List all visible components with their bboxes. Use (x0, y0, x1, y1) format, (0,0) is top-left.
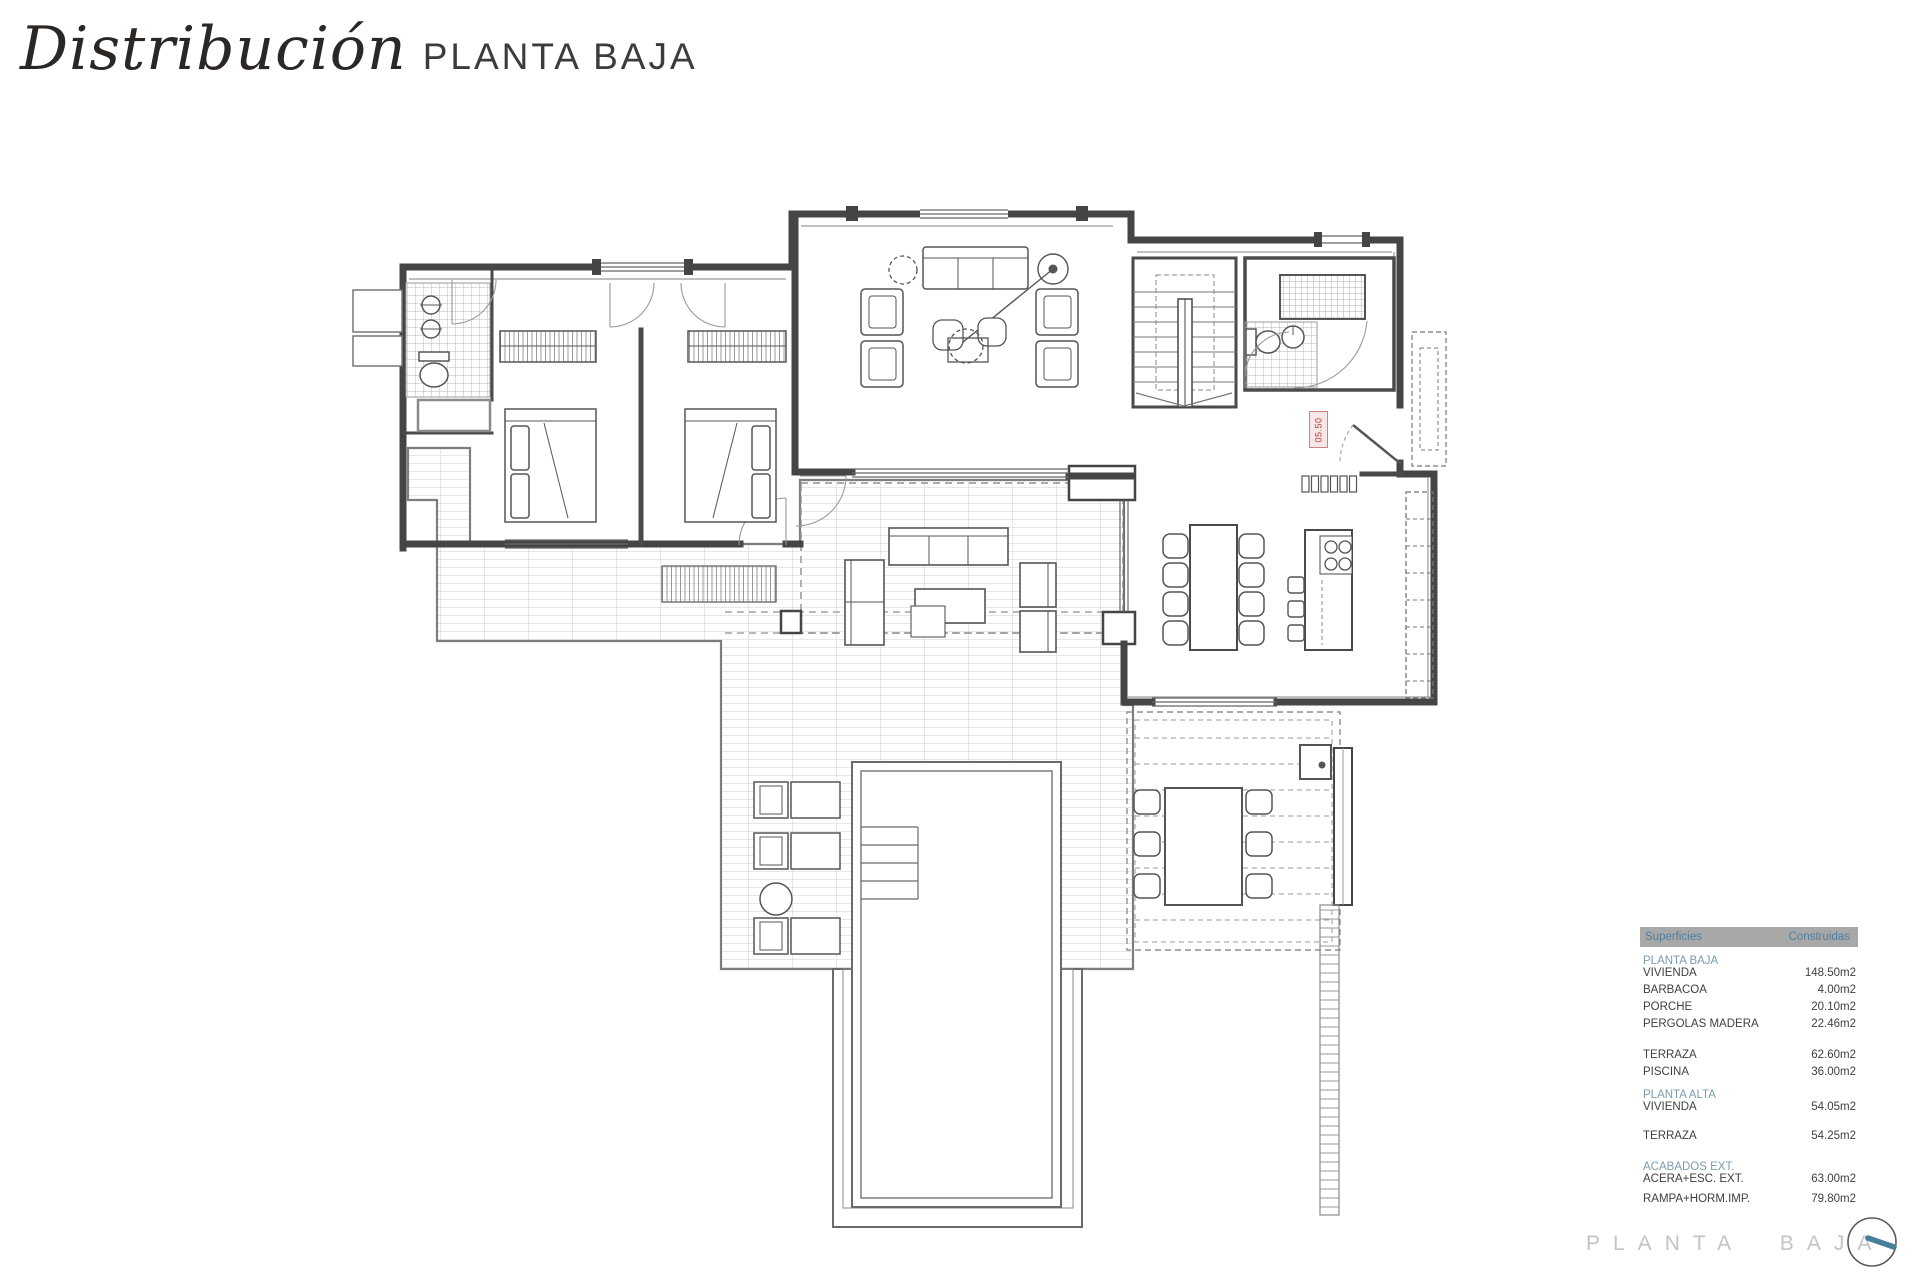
window-entry-north (1314, 232, 1370, 247)
table-row: TERRAZA54.25m2 (1640, 1130, 1858, 1147)
outdoor-dining-table (1165, 788, 1242, 905)
pool (833, 762, 1082, 1227)
terrace-louver-bench (662, 566, 776, 602)
outdoor-sofa (845, 560, 884, 645)
table-row: PORCHE20.10m2 (1640, 1001, 1858, 1018)
col-construidas: Construidas (1789, 931, 1850, 943)
sofa (923, 247, 1028, 289)
side-table (760, 883, 792, 915)
entry-door-leaf (1353, 425, 1401, 464)
outdoor-chair (1020, 563, 1056, 652)
shower (1280, 275, 1365, 319)
table-row: PLANTA ALTA (1640, 1089, 1858, 1101)
surfaces-table-header: Superficies Construidas (1640, 927, 1858, 947)
entry-cabinet (1302, 476, 1357, 492)
outdoor-table (911, 606, 945, 637)
exterior-ramp (1320, 905, 1339, 1215)
bbq-terrace (1127, 712, 1352, 1215)
table-row: ACABADOS EXT. (1640, 1161, 1858, 1173)
dining-room (1163, 525, 1264, 650)
floor-plan-drawing (0, 0, 1920, 1280)
table-row: PERGOLAS MADERA22.46m2 (1640, 1018, 1858, 1035)
porch-bench (1412, 332, 1446, 466)
table-row: VIVIENDA54.05m2 (1640, 1101, 1858, 1118)
table-row: PISCINA36.00m2 (1640, 1066, 1858, 1083)
sun-loungers (754, 782, 840, 954)
col-superficies: Superficies (1645, 931, 1702, 943)
kitchen-counter (1406, 492, 1433, 698)
staircase (1133, 275, 1236, 407)
dining-table (1190, 525, 1237, 650)
table-row: ACERA+ESC. EXT.63.00m2 (1640, 1173, 1858, 1190)
bed (685, 409, 776, 522)
footer-plan-name: PLANTA BAJA (1586, 1232, 1884, 1256)
outdoor-sofa (889, 528, 1008, 565)
surfaces-table: Superficies Construidas PLANTA BAJA VIVI… (1640, 927, 1858, 1210)
barbecue (1300, 745, 1331, 779)
kitchen (1288, 492, 1433, 698)
bed (505, 409, 596, 522)
bathroom-small (1245, 275, 1367, 388)
pier (781, 611, 801, 633)
door-arc (1340, 425, 1353, 464)
window-bedroom-north (592, 259, 693, 275)
exterior-units (353, 290, 402, 366)
plant (889, 256, 917, 284)
toilet (419, 352, 449, 387)
barbecue-burner (1319, 762, 1326, 769)
bathroom-main (353, 280, 496, 431)
table-row: PLANTA BAJA (1640, 955, 1858, 967)
table-row: VIVIENDA148.50m2 (1640, 967, 1858, 984)
compass-logo-icon (1843, 1213, 1901, 1271)
pier (1103, 612, 1135, 644)
bar-stools (1288, 577, 1304, 641)
vanity-cabinet (418, 400, 490, 431)
table-row: RAMPA+HORM.IMP.79.80m2 (1640, 1193, 1858, 1210)
table-row: BARBACOA4.00m2 (1640, 984, 1858, 1001)
table-row: TERRAZA62.60m2 (1640, 1049, 1858, 1066)
page: Distribución PLANTA BAJA (0, 0, 1920, 1280)
pier (1069, 466, 1135, 500)
room-area-label: 05.50 (1309, 411, 1328, 448)
coffee-tables (933, 318, 1006, 363)
